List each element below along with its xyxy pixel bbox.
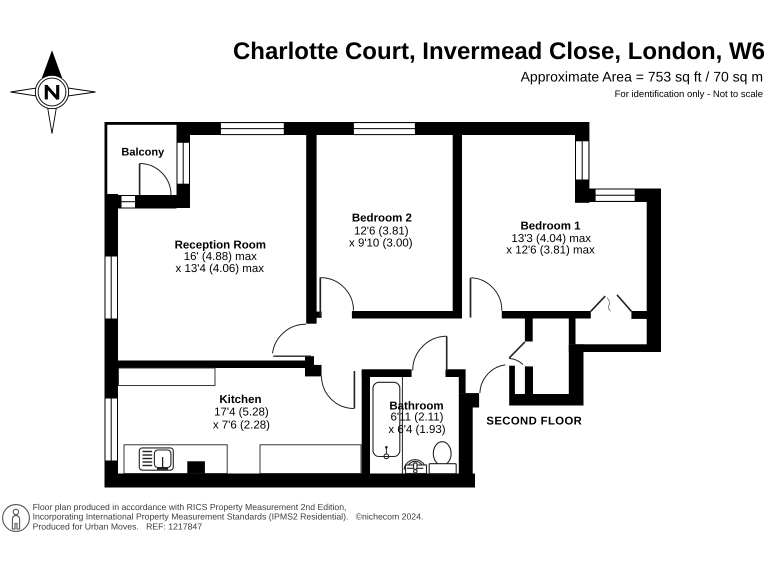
svg-text:x 12'6 (3.81) max: x 12'6 (3.81) max [506,244,595,256]
svg-text:12'6 (3.81): 12'6 (3.81) [354,225,409,237]
svg-text:SECOND FLOOR: SECOND FLOOR [486,416,582,428]
svg-text:x 6'4 (1.93): x 6'4 (1.93) [388,424,445,436]
svg-text:Reception Room: Reception Room [175,239,266,251]
svg-text:Charlotte Court, Invermead Clo: Charlotte Court, Invermead Close, London… [233,38,765,65]
svg-text:Incorporating International Pr: Incorporating International Property Mea… [33,512,424,522]
svg-text:Balcony: Balcony [121,146,165,158]
svg-text:Bedroom 2: Bedroom 2 [352,213,412,225]
svg-text:x 13'4 (4.06) max: x 13'4 (4.06) max [176,263,265,275]
svg-text:6'11 (2.11): 6'11 (2.11) [391,412,444,424]
svg-text:Bathroom: Bathroom [389,401,443,413]
svg-text:Kitchen: Kitchen [219,394,261,406]
svg-text:Floor plan produced in accorda: Floor plan produced in accordance with R… [33,502,347,512]
svg-text:x 7'6 (2.28): x 7'6 (2.28) [213,419,270,431]
svg-text:16' (4.88) max: 16' (4.88) max [184,251,257,263]
svg-text:x 9'10 (3.00): x 9'10 (3.00) [349,238,413,250]
svg-text:17'4 (5.28): 17'4 (5.28) [214,407,269,419]
svg-text:Approximate Area = 753 sq ft /: Approximate Area = 753 sq ft / 70 sq m [521,69,763,85]
svg-text:Bedroom 1: Bedroom 1 [520,220,581,232]
svg-text:For identification only - Not: For identification only - Not to scale [615,89,763,100]
svg-text:Produced for Urban Moves. RE: Produced for Urban Moves. REF: 1217847 [33,521,203,531]
svg-text:13'3 (4.04) max: 13'3 (4.04) max [511,233,591,245]
